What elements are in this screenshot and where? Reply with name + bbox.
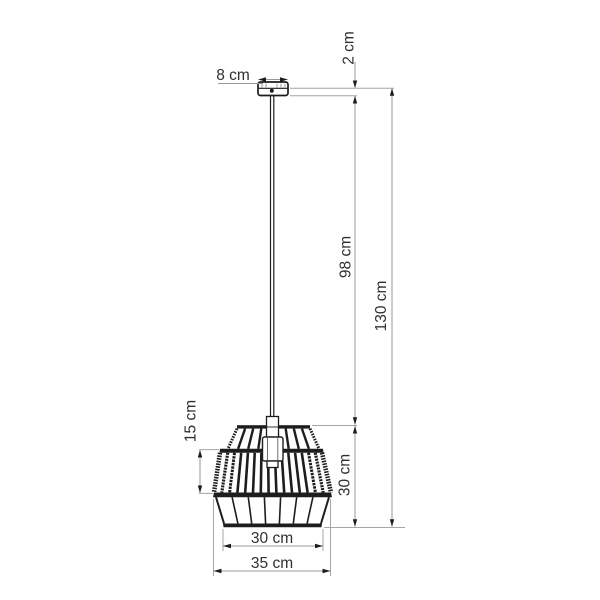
drawing-svg: 8 cm 2 cm 98 cm 130 cm 15 cm (0, 0, 600, 600)
slat (258, 429, 261, 449)
arrowhead-right (315, 544, 323, 548)
dim-canopy-height: 2 cm (290, 31, 394, 96)
slat (294, 429, 299, 449)
arrowhead-left (214, 569, 222, 573)
cord-drop-label: 98 cm (338, 236, 355, 278)
arrowhead-right (323, 569, 331, 573)
socket-tip (267, 461, 278, 468)
dim-bottom-diameter: 30 cm (223, 529, 323, 551)
arrowhead-up (353, 96, 357, 104)
arrowhead-down (353, 519, 357, 527)
slat (214, 453, 220, 493)
arrowhead-left (223, 544, 231, 548)
slat (302, 429, 309, 449)
slat (245, 453, 248, 493)
slat (232, 497, 238, 523)
slat (321, 497, 329, 523)
power-cord (271, 95, 274, 420)
slat (238, 429, 245, 449)
socket-body (263, 437, 284, 461)
slat (279, 497, 280, 523)
arrowhead-up (353, 426, 357, 434)
dim-cord-drop: 98 cm (338, 96, 358, 425)
slat (286, 429, 289, 449)
canopy-width-label: 8 cm (216, 67, 250, 84)
max-diameter-label: 35 cm (251, 555, 293, 572)
slat (248, 497, 251, 523)
slat (307, 497, 313, 523)
slat (310, 429, 319, 449)
slat (237, 453, 241, 493)
shade-height-label: 30 cm (337, 454, 354, 496)
lamp-dimension-drawing: 8 cm 2 cm 98 cm 130 cm 15 cm (0, 0, 600, 600)
arrowhead-down (353, 81, 357, 89)
total-height-label: 130 cm (373, 281, 390, 332)
arrowhead-left (258, 77, 266, 81)
dim-band-height: 15 cm (183, 400, 220, 494)
band-bottom-rim (213, 493, 332, 498)
slat (228, 429, 237, 449)
shade-lower-tier (216, 497, 329, 527)
canopy-height-label: 2 cm (341, 31, 358, 65)
slat (295, 453, 300, 493)
arrowhead-down (390, 519, 394, 527)
slat (302, 453, 308, 493)
band-height-label: 15 cm (183, 400, 200, 442)
slat (293, 497, 296, 523)
canopy-screw (270, 89, 274, 93)
slat (222, 453, 228, 493)
dim-shade-height: 30 cm (312, 426, 405, 528)
bottom-rim (223, 524, 322, 528)
dim-total-height: 130 cm (373, 88, 394, 527)
arrowhead-up (198, 450, 202, 458)
slat (230, 453, 235, 493)
slat (216, 497, 224, 523)
slat (288, 453, 292, 493)
arrowhead-down (353, 417, 357, 425)
slat (253, 453, 255, 493)
slat (248, 429, 253, 449)
arrowhead-right (280, 77, 288, 81)
arrowhead-up (390, 88, 394, 96)
arrowhead-down (198, 486, 202, 494)
slat (309, 453, 316, 493)
lamp-socket-assembly (263, 417, 284, 468)
slat (264, 497, 265, 523)
ceiling-canopy (258, 82, 288, 96)
bottom-diameter-label: 30 cm (251, 530, 293, 547)
slat (261, 453, 262, 493)
